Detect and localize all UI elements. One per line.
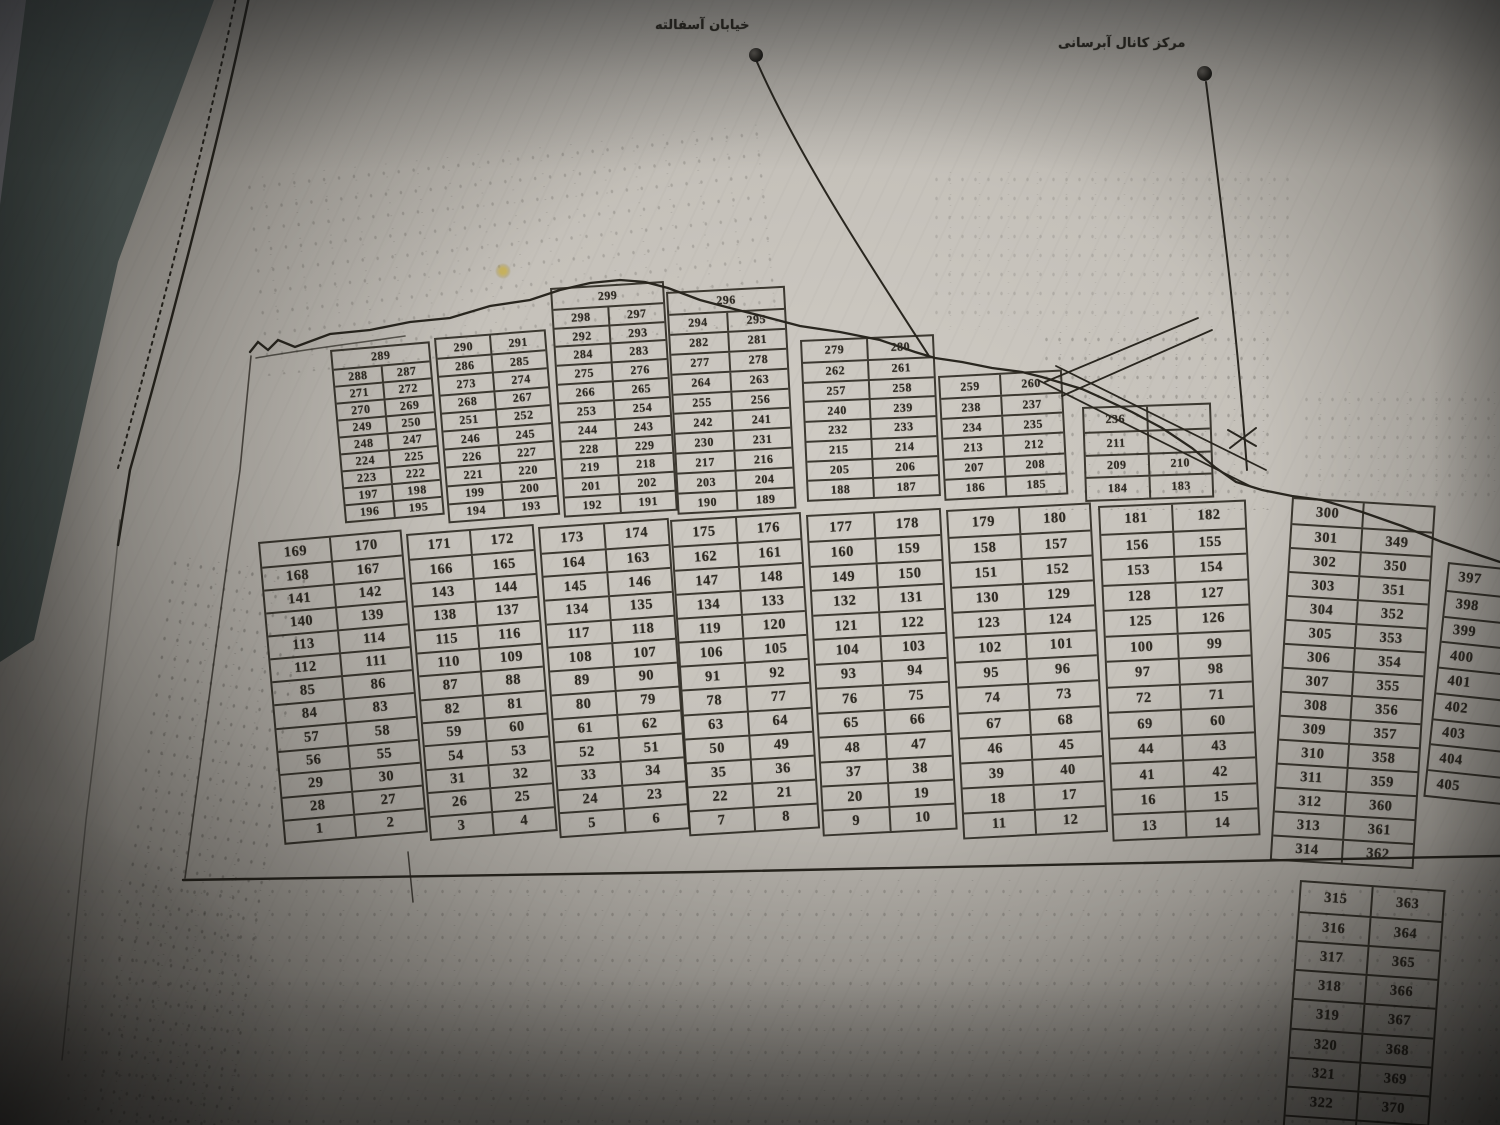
parcel-127: 127 bbox=[1174, 580, 1248, 607]
parcel-242: 242 bbox=[674, 412, 731, 433]
paper-spot bbox=[495, 263, 511, 279]
parcel-212: 212 bbox=[1002, 434, 1064, 455]
parcel-150: 150 bbox=[875, 561, 943, 587]
parcel-empty bbox=[1146, 429, 1210, 452]
parcel-358: 358 bbox=[1347, 745, 1419, 771]
parcel-213: 213 bbox=[943, 437, 1003, 458]
parcel-293: 293 bbox=[608, 323, 665, 343]
parcel-131: 131 bbox=[876, 585, 944, 611]
parcel-63: 63 bbox=[684, 712, 748, 738]
parcel-row: 184183 bbox=[1086, 473, 1212, 500]
parcel-95: 95 bbox=[956, 660, 1027, 687]
parcel-133: 133 bbox=[739, 588, 805, 614]
parcel-46: 46 bbox=[960, 736, 1031, 763]
parcel-363: 363 bbox=[1370, 887, 1444, 921]
parcel-129: 129 bbox=[1022, 582, 1095, 609]
parcel-312: 312 bbox=[1275, 789, 1345, 815]
parcel-6: 6 bbox=[622, 806, 688, 832]
parcel-352: 352 bbox=[1355, 601, 1427, 627]
parcel-307: 307 bbox=[1282, 669, 1352, 695]
parcel-64: 64 bbox=[746, 708, 812, 734]
parcel-239: 239 bbox=[869, 397, 936, 418]
parcel-265: 265 bbox=[612, 379, 669, 399]
x-mark bbox=[1228, 428, 1256, 448]
parcel-254: 254 bbox=[613, 398, 670, 418]
canal-line bbox=[1206, 82, 1247, 470]
parcel-block-ub: 2902912862852732742682672512522462452262… bbox=[434, 329, 560, 523]
parcel-253: 253 bbox=[559, 401, 614, 421]
map-border-dotted-line bbox=[118, 0, 237, 468]
water-canal-label: مرکز کانال آبرسانی bbox=[1058, 36, 1208, 51]
parcel-52: 52 bbox=[555, 739, 619, 765]
parcel-16: 16 bbox=[1112, 787, 1184, 814]
map-border-faint-line bbox=[62, 520, 120, 1060]
parcel-36: 36 bbox=[749, 756, 815, 782]
parcel-147: 147 bbox=[675, 568, 739, 594]
parcel-238: 238 bbox=[941, 397, 1001, 418]
parcel-24: 24 bbox=[558, 786, 622, 812]
parcel-244: 244 bbox=[560, 420, 615, 440]
parcel-207: 207 bbox=[944, 457, 1004, 478]
parcel-174: 174 bbox=[602, 520, 668, 548]
parcel-94: 94 bbox=[880, 659, 948, 685]
parcel-365: 365 bbox=[1366, 947, 1440, 979]
parcel-69: 69 bbox=[1109, 711, 1181, 738]
parcel-block-m1: 1691701681671411421401391131141121118586… bbox=[258, 529, 428, 844]
parcel-106: 106 bbox=[680, 640, 744, 666]
parcel-block-m4: 1751761621611471481341331191201061059192… bbox=[670, 512, 820, 836]
parcel-50: 50 bbox=[685, 736, 749, 762]
parcel-208: 208 bbox=[1003, 454, 1065, 475]
parcel-230: 230 bbox=[675, 432, 732, 453]
parcel-122: 122 bbox=[878, 610, 946, 636]
parcel-47: 47 bbox=[884, 732, 952, 758]
parcel-235: 235 bbox=[1001, 414, 1063, 435]
parcel-318: 318 bbox=[1294, 971, 1366, 1003]
parcel-78: 78 bbox=[683, 688, 747, 714]
parcel-192: 192 bbox=[565, 495, 620, 515]
parcel-152: 152 bbox=[1020, 557, 1093, 584]
parcel-75: 75 bbox=[882, 683, 950, 709]
parcel-105: 105 bbox=[742, 636, 808, 662]
parcel-79: 79 bbox=[614, 687, 680, 713]
parcel-92: 92 bbox=[743, 660, 809, 686]
parcel-44: 44 bbox=[1110, 736, 1182, 763]
parcel-20: 20 bbox=[822, 784, 888, 810]
parcel-134: 134 bbox=[677, 592, 741, 618]
parcel-183: 183 bbox=[1148, 475, 1212, 498]
parcel-13: 13 bbox=[1114, 813, 1186, 840]
parcel-260: 260 bbox=[999, 372, 1061, 395]
parcel-237: 237 bbox=[1000, 394, 1062, 415]
parcel-294: 294 bbox=[669, 313, 726, 334]
parcel-232: 232 bbox=[806, 420, 871, 441]
parcel-368: 368 bbox=[1360, 1034, 1434, 1066]
parcel-315: 315 bbox=[1300, 882, 1372, 916]
parcel-132: 132 bbox=[812, 589, 878, 615]
parcel-151: 151 bbox=[951, 560, 1022, 587]
parcel-262: 262 bbox=[803, 361, 868, 382]
parcel-68: 68 bbox=[1028, 707, 1101, 734]
parcel-161: 161 bbox=[736, 540, 802, 566]
parcel-191: 191 bbox=[619, 492, 676, 512]
parcel-173: 173 bbox=[540, 524, 604, 552]
parcel-366: 366 bbox=[1364, 976, 1438, 1008]
parcel-49: 49 bbox=[748, 732, 814, 758]
parcel-77: 77 bbox=[745, 684, 811, 710]
parcel-35: 35 bbox=[687, 760, 751, 786]
parcel-321: 321 bbox=[1288, 1058, 1360, 1090]
parcel-189: 189 bbox=[735, 489, 794, 510]
parcel-block-m6: 1791801581571511521301291231241021019596… bbox=[946, 502, 1108, 839]
parcel-98: 98 bbox=[1178, 657, 1252, 684]
parcel-277: 277 bbox=[671, 353, 728, 374]
parcel-210: 210 bbox=[1147, 452, 1211, 475]
parcel-155: 155 bbox=[1172, 529, 1246, 556]
parcel-89: 89 bbox=[550, 668, 614, 694]
parcel-367: 367 bbox=[1362, 1005, 1436, 1037]
parcel-282: 282 bbox=[670, 333, 727, 354]
parcel-124: 124 bbox=[1023, 607, 1096, 634]
parcel-228: 228 bbox=[561, 439, 616, 459]
parcel-107: 107 bbox=[611, 640, 677, 666]
street-edge-line bbox=[185, 356, 251, 878]
parcel-99: 99 bbox=[1177, 631, 1251, 658]
parcel-360: 360 bbox=[1344, 793, 1416, 819]
parcel-350: 350 bbox=[1358, 553, 1430, 579]
parcel-369: 369 bbox=[1357, 1063, 1431, 1095]
parcel-9: 9 bbox=[824, 809, 890, 835]
parcel-313: 313 bbox=[1273, 813, 1343, 839]
parcel-120: 120 bbox=[740, 612, 806, 638]
parcel-357: 357 bbox=[1348, 721, 1420, 747]
parcel-184: 184 bbox=[1087, 477, 1149, 500]
parcel-134: 134 bbox=[545, 597, 609, 623]
parcel-90: 90 bbox=[613, 664, 679, 690]
parcel-128: 128 bbox=[1104, 583, 1176, 610]
parcel-37: 37 bbox=[821, 760, 887, 786]
parcel-51: 51 bbox=[617, 735, 683, 761]
parcel-214: 214 bbox=[870, 437, 937, 458]
parcel-257: 257 bbox=[804, 381, 869, 402]
parcel-43: 43 bbox=[1181, 733, 1255, 760]
parcel-block-uc: 2992982972922932842832752762662652532542… bbox=[550, 281, 678, 518]
parcel-40: 40 bbox=[1031, 757, 1104, 784]
parcel-195: 195 bbox=[392, 498, 442, 517]
parcel-211: 211 bbox=[1085, 432, 1147, 455]
parcel-149: 149 bbox=[811, 564, 877, 590]
parcel-12: 12 bbox=[1033, 807, 1106, 834]
parcel-72: 72 bbox=[1108, 685, 1180, 712]
parcel-206: 206 bbox=[871, 457, 938, 478]
parcel-block-uf: 259260238237234235213212207208186185 bbox=[938, 370, 1068, 501]
parcel-154: 154 bbox=[1173, 555, 1247, 582]
parcel-266: 266 bbox=[558, 383, 613, 403]
parcel-354: 354 bbox=[1352, 649, 1424, 675]
parcel-193: 193 bbox=[502, 497, 558, 517]
water-canal-marker-icon bbox=[1197, 66, 1212, 81]
parcel-2: 2 bbox=[353, 809, 426, 836]
parcel-218: 218 bbox=[616, 454, 673, 474]
parcel-block-m7: 1811821561551531541281271251261009997987… bbox=[1098, 500, 1261, 842]
parcel-33: 33 bbox=[557, 763, 621, 789]
parcel-38: 38 bbox=[885, 756, 953, 782]
parcel-314: 314 bbox=[1272, 836, 1342, 862]
parcel-42: 42 bbox=[1182, 759, 1256, 786]
parcel-263: 263 bbox=[729, 369, 788, 390]
parcel-178: 178 bbox=[873, 510, 941, 538]
parcel-91: 91 bbox=[681, 664, 745, 690]
parcel-351: 351 bbox=[1357, 577, 1429, 603]
parcel-203: 203 bbox=[678, 472, 735, 493]
parcel-22: 22 bbox=[688, 784, 752, 810]
parcel-121: 121 bbox=[813, 613, 879, 639]
parcel-1: 1 bbox=[284, 815, 355, 842]
parcel-102: 102 bbox=[955, 635, 1026, 662]
parcel-279: 279 bbox=[802, 339, 867, 362]
map-border-line bbox=[118, 0, 250, 545]
parcel-275: 275 bbox=[557, 364, 612, 384]
parcel-196: 196 bbox=[346, 502, 394, 521]
parcel-361: 361 bbox=[1342, 817, 1414, 843]
parcel-255: 255 bbox=[673, 392, 730, 413]
parcel-278: 278 bbox=[728, 350, 787, 371]
parcel-308: 308 bbox=[1281, 693, 1351, 719]
parcel-21: 21 bbox=[751, 780, 817, 806]
parcel-190: 190 bbox=[679, 492, 736, 513]
parcel-row: 236 bbox=[1084, 405, 1210, 432]
parcel-67: 67 bbox=[959, 710, 1030, 737]
parcel-370: 370 bbox=[1355, 1092, 1429, 1124]
parcel-74: 74 bbox=[957, 685, 1028, 712]
photographed-parcel-map: خیابان آسفالته مرکز کانال آبرسانی 289288… bbox=[0, 0, 1500, 1125]
parcel-100: 100 bbox=[1106, 634, 1178, 661]
parcel-194: 194 bbox=[449, 501, 503, 521]
parcel-23: 23 bbox=[621, 782, 687, 808]
parcel-159: 159 bbox=[874, 536, 942, 562]
parcel-234: 234 bbox=[942, 417, 1002, 438]
parcel-146: 146 bbox=[606, 569, 672, 595]
parcel-359: 359 bbox=[1345, 769, 1417, 795]
parcel-row: 211 bbox=[1085, 427, 1211, 454]
parcel-185: 185 bbox=[1004, 474, 1066, 495]
parcel-204: 204 bbox=[734, 469, 793, 490]
parcel-205: 205 bbox=[807, 460, 872, 481]
parcel-310: 310 bbox=[1278, 741, 1348, 767]
parcel-45: 45 bbox=[1029, 732, 1102, 759]
parcel-118: 118 bbox=[609, 617, 675, 643]
parcel-202: 202 bbox=[618, 473, 675, 493]
parcel-306: 306 bbox=[1284, 645, 1354, 671]
parcel-256: 256 bbox=[730, 389, 789, 410]
parcel-153: 153 bbox=[1102, 558, 1174, 585]
parcel-319: 319 bbox=[1292, 1000, 1364, 1032]
parcel-209: 209 bbox=[1086, 454, 1148, 477]
parcel-block-r8: 3003013493023503033513043523053533063543… bbox=[1270, 497, 1436, 869]
parcel-353: 353 bbox=[1354, 625, 1426, 651]
parcel-305: 305 bbox=[1285, 621, 1355, 647]
parcel-61: 61 bbox=[553, 716, 617, 742]
parcel-empty bbox=[1146, 405, 1210, 430]
parcel-177: 177 bbox=[808, 514, 874, 542]
parcel-15: 15 bbox=[1183, 784, 1257, 811]
parcel-320: 320 bbox=[1290, 1029, 1362, 1061]
parcel-80: 80 bbox=[552, 692, 616, 718]
parcel-empty bbox=[1361, 503, 1433, 531]
parcel-97: 97 bbox=[1107, 660, 1179, 687]
parcel-block-m3: 1731741641631451461341351171181081078990… bbox=[538, 518, 690, 838]
parcel-48: 48 bbox=[820, 735, 886, 761]
parcel-19: 19 bbox=[887, 781, 955, 807]
parcel-188: 188 bbox=[808, 479, 873, 500]
parcel-201: 201 bbox=[564, 477, 619, 497]
parcel-172: 172 bbox=[469, 526, 534, 554]
parcel-126: 126 bbox=[1176, 606, 1250, 633]
parcel-280: 280 bbox=[866, 336, 933, 359]
parcel-186: 186 bbox=[945, 477, 1005, 498]
parcel-261: 261 bbox=[867, 358, 934, 379]
parcel-217: 217 bbox=[677, 452, 734, 473]
parcel-309: 309 bbox=[1279, 717, 1349, 743]
parcel-258: 258 bbox=[868, 378, 935, 399]
parcel-65: 65 bbox=[818, 711, 884, 737]
parcel-259: 259 bbox=[940, 375, 1000, 398]
parcel-233: 233 bbox=[870, 417, 937, 438]
parcel-41: 41 bbox=[1111, 762, 1183, 789]
parcel-292: 292 bbox=[555, 326, 610, 346]
parcel-302: 302 bbox=[1289, 549, 1359, 575]
parcel-241: 241 bbox=[731, 409, 790, 430]
parcel-17: 17 bbox=[1032, 782, 1105, 809]
parcel-298: 298 bbox=[553, 307, 608, 327]
parcel-164: 164 bbox=[542, 550, 606, 576]
parcel-264: 264 bbox=[672, 372, 729, 393]
parcel-3: 3 bbox=[430, 813, 492, 839]
parcel-4: 4 bbox=[491, 808, 555, 834]
parcel-block-m2: 1711721661651431441381371151161101098788… bbox=[406, 524, 558, 841]
parcel-117: 117 bbox=[547, 621, 611, 647]
parcel-96: 96 bbox=[1025, 657, 1098, 684]
parcel-276: 276 bbox=[611, 360, 668, 380]
parcel-148: 148 bbox=[738, 564, 804, 590]
parcel-317: 317 bbox=[1296, 942, 1368, 974]
parcel-284: 284 bbox=[556, 345, 611, 365]
parcel-60: 60 bbox=[1180, 708, 1254, 735]
parcel-block-ua: 2892882872712722702692492502482472242252… bbox=[330, 341, 445, 523]
parcel-216: 216 bbox=[733, 449, 792, 470]
parcel-180: 180 bbox=[1018, 505, 1091, 534]
parcel-356: 356 bbox=[1350, 697, 1422, 723]
parcel-176: 176 bbox=[735, 514, 801, 542]
parcel-157: 157 bbox=[1019, 532, 1092, 559]
parcel-135: 135 bbox=[608, 593, 674, 619]
asphalt-street-marker-icon bbox=[749, 48, 763, 62]
parcel-362: 362 bbox=[1341, 841, 1413, 867]
parcel-block-ud: 2962942952822812772782642632552562422412… bbox=[666, 286, 797, 515]
parcel-block-ue: 2792802622612572582402392322332152142052… bbox=[800, 334, 941, 502]
parcel-108: 108 bbox=[549, 645, 613, 671]
parcel-101: 101 bbox=[1024, 632, 1097, 659]
parcel-281: 281 bbox=[727, 330, 786, 351]
parcel-104: 104 bbox=[815, 638, 881, 664]
parcel-119: 119 bbox=[678, 616, 742, 642]
parcel-283: 283 bbox=[610, 342, 667, 362]
parcel-301: 301 bbox=[1291, 525, 1361, 551]
parcel-163: 163 bbox=[604, 546, 670, 572]
parcel-303: 303 bbox=[1288, 573, 1358, 599]
parcel-215: 215 bbox=[806, 440, 871, 461]
parcel-7: 7 bbox=[690, 808, 754, 834]
parcel-71: 71 bbox=[1179, 682, 1253, 709]
parcel-158: 158 bbox=[950, 535, 1021, 562]
parcel-236: 236 bbox=[1084, 407, 1146, 432]
parcel-18: 18 bbox=[963, 786, 1034, 813]
parcel-355: 355 bbox=[1351, 673, 1423, 699]
parcel-175: 175 bbox=[672, 518, 736, 546]
parcel-125: 125 bbox=[1105, 609, 1177, 636]
parcel-229: 229 bbox=[615, 435, 672, 455]
parcel-34: 34 bbox=[619, 758, 685, 784]
parcel-162: 162 bbox=[674, 544, 738, 570]
parcel-5: 5 bbox=[560, 810, 624, 836]
parcel-160: 160 bbox=[809, 540, 875, 566]
parcel-73: 73 bbox=[1027, 682, 1100, 709]
parcel-block-m5: 1771781601591491501321311211221041039394… bbox=[806, 508, 958, 837]
parcel-304: 304 bbox=[1287, 597, 1357, 623]
parcel-181: 181 bbox=[1100, 505, 1172, 534]
parcel-39: 39 bbox=[961, 761, 1032, 788]
parcel-93: 93 bbox=[816, 662, 882, 688]
parcel-182: 182 bbox=[1171, 502, 1245, 531]
parcel-123: 123 bbox=[953, 610, 1024, 637]
parcel-156: 156 bbox=[1101, 532, 1173, 559]
parcel-187: 187 bbox=[872, 476, 939, 497]
parcel-66: 66 bbox=[883, 707, 951, 733]
parcel-block-r9: 3153633163643173653183663193673203683213… bbox=[1281, 880, 1445, 1125]
parcel-297: 297 bbox=[607, 304, 664, 324]
parcel-11: 11 bbox=[964, 811, 1035, 838]
parcel-76: 76 bbox=[817, 686, 883, 712]
parcel-240: 240 bbox=[805, 400, 870, 421]
parcel-103: 103 bbox=[879, 634, 947, 660]
parcel-219: 219 bbox=[563, 458, 618, 478]
parcel-62: 62 bbox=[616, 711, 682, 737]
parcel-10: 10 bbox=[888, 805, 956, 831]
parcel-311: 311 bbox=[1276, 765, 1346, 791]
parcel-145: 145 bbox=[544, 574, 608, 600]
parcel-171: 171 bbox=[408, 531, 471, 559]
parcel-322: 322 bbox=[1286, 1087, 1358, 1119]
parcel-8: 8 bbox=[752, 804, 818, 830]
parcel-231: 231 bbox=[732, 429, 791, 450]
parcel-316: 316 bbox=[1298, 913, 1370, 945]
parcel-295: 295 bbox=[726, 310, 785, 331]
parcel-block-ug: 236211209210184183 bbox=[1082, 402, 1214, 501]
parcel-row: 209210 bbox=[1086, 450, 1212, 477]
parcel-349: 349 bbox=[1360, 529, 1432, 555]
parcel-179: 179 bbox=[948, 508, 1019, 537]
parcel-364: 364 bbox=[1368, 918, 1442, 950]
parcel-243: 243 bbox=[614, 417, 671, 437]
asphalt-street-label: خیابان آسفالته bbox=[655, 18, 805, 33]
parcel-130: 130 bbox=[952, 585, 1023, 612]
parcel-300: 300 bbox=[1292, 499, 1362, 527]
parcel-14: 14 bbox=[1184, 810, 1258, 837]
